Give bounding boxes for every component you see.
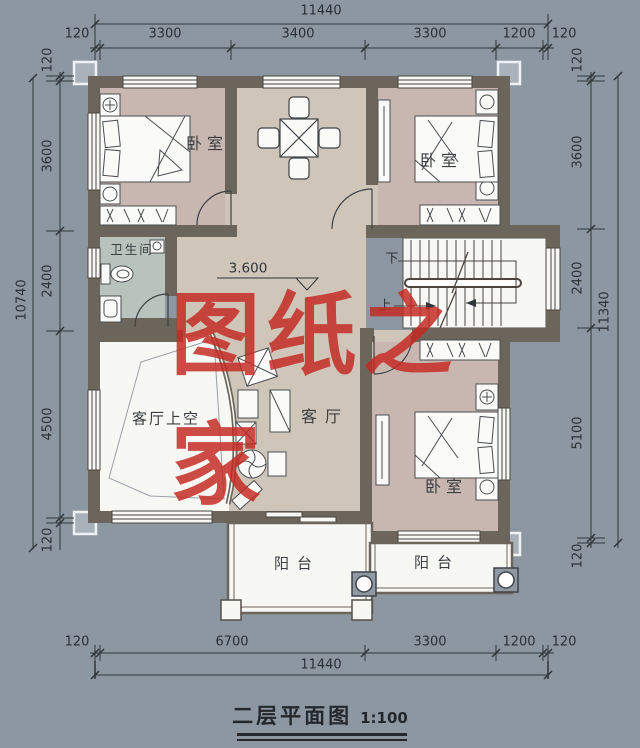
dim-left-seg: 120 <box>42 48 55 73</box>
dim-bottom-seg: 1200 <box>502 636 535 649</box>
dim-right-seg: 5100 <box>572 416 585 449</box>
dim-left-overall: 10740 <box>16 279 29 320</box>
dim-left-seg: 4500 <box>42 407 55 440</box>
floor-plan-canvas: 11440 120 3300 3400 3300 1200 120 10740 … <box>0 0 640 748</box>
room-label-bedroom-top-left: 卧室 <box>186 136 228 152</box>
title-block: 二层平面图1:100 <box>232 700 408 730</box>
dim-top-seg: 3300 <box>413 28 446 41</box>
room-label-balcony-left: 阳台 <box>274 557 320 572</box>
dim-top-overall: 11440 <box>300 5 341 18</box>
dim-right-overall: 11340 <box>599 291 612 332</box>
room-label-bathroom: 卫生间 <box>110 244 154 257</box>
dim-left-seg: 2400 <box>42 264 55 297</box>
room-label-bedroom-top-right: 卧室 <box>420 153 462 169</box>
dim-top-seg: 3300 <box>148 28 181 41</box>
dim-left-seg: 120 <box>42 528 55 553</box>
dim-right-seg: 3600 <box>572 135 585 168</box>
dim-bottom-seg: 120 <box>65 636 90 649</box>
title-underline-thin <box>237 739 407 741</box>
dim-right-seg: 120 <box>572 544 585 569</box>
watermark-text: 图纸之家 <box>171 262 484 522</box>
drawing-title: 二层平面图 <box>232 704 352 728</box>
drawing-scale: 1:100 <box>360 709 408 727</box>
dim-top-seg: 1200 <box>502 28 535 41</box>
dim-bottom-seg: 6700 <box>215 636 248 649</box>
dim-top-seg: 3400 <box>281 28 314 41</box>
dim-bottom-seg: 3300 <box>413 636 446 649</box>
dim-right-seg: 2400 <box>572 261 585 294</box>
dim-left-seg: 3600 <box>42 139 55 172</box>
title-underline-thick <box>237 733 407 736</box>
room-label-balcony-right: 阳台 <box>414 556 460 571</box>
dim-top-seg: 120 <box>552 28 577 41</box>
dim-right-seg: 120 <box>572 48 585 73</box>
dim-bottom-seg: 120 <box>552 636 577 649</box>
dim-bottom-overall: 11440 <box>300 659 341 672</box>
dim-top-seg: 120 <box>65 28 90 41</box>
